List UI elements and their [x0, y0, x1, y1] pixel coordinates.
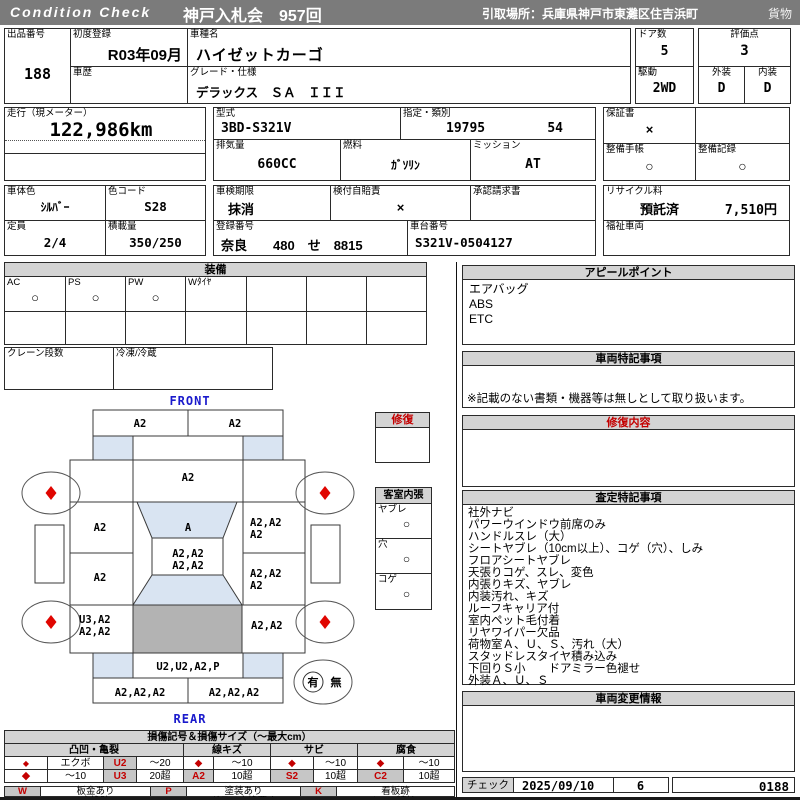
model-code-value: 3BD-S321V [221, 121, 291, 136]
zone-side-right-rear-1: A2,A2 [250, 568, 282, 580]
brand-logo: Condition Check [10, 4, 151, 20]
appeal-points-body: エアバッグ ABS ETC [462, 279, 795, 345]
change-info-header: 車両変更情報 [462, 691, 795, 706]
approval-cell: 承認請求書 [470, 185, 596, 221]
grade-label: グレード・仕様 [190, 67, 257, 78]
capacity-label: 定員 [7, 221, 26, 232]
approval-label: 承認請求書 [473, 186, 521, 197]
equipment-label-pw: PW [128, 277, 143, 288]
equipment-cell-r2-2 [65, 311, 126, 345]
registration-number-cell: 登録番号 奈良 480 せ 8815 [213, 220, 408, 256]
freezer-label: 冷凍/冷蔵 [116, 348, 157, 359]
equipment-cell-wtire: Wﾀｲﾔ [185, 276, 247, 312]
repair-flag-label: 修復 [392, 414, 414, 426]
exterior-grade-cell: 外装 D [698, 66, 745, 104]
drive-cell: 駆動 2WD [635, 66, 694, 104]
cabin-lining-burn-label: コゲ [378, 574, 397, 585]
check-date-cell: 2025/09/10 6 [513, 777, 669, 793]
zone-door-front-left: A2 [94, 522, 107, 534]
recycle-fee-label: リサイクル料 [606, 186, 663, 197]
insurance-label: 検付自賠責 [333, 186, 381, 197]
legend-dent-code-2: U3 [103, 769, 137, 783]
equipment-cell-r2-5 [246, 311, 307, 345]
exterior-grade-label: 外装 [699, 67, 744, 78]
cabin-lining-hole-value: ○ [382, 552, 431, 566]
history-cell: 車歴 [70, 66, 188, 104]
damage-diamond-rear-left [46, 615, 57, 629]
equipment-cell-ac: AC ○ [4, 276, 66, 312]
equipment-value-ac: ○ [5, 290, 65, 305]
zone-front-bumper-left: A2 [134, 418, 147, 430]
body-color-label: 車体色 [7, 186, 36, 197]
legend-dent-size-2: 20超 [136, 769, 184, 783]
cabin-lining-hole-cell: 穴 ○ [375, 538, 432, 574]
assessment-item: 荷物室Ａ、Ｕ、Ｓ、汚れ（大） [468, 639, 789, 651]
lot-number-value: 188 [5, 65, 70, 83]
odometer-value: 122,986km [5, 119, 197, 141]
recycle-status-value: 預託済 [640, 199, 679, 218]
zone-roof-1: A2,A2 [172, 548, 204, 560]
load-capacity-label: 積載量 [108, 221, 137, 232]
warranty-label: 保証書 [606, 108, 635, 119]
class-value-2: 54 [547, 121, 563, 136]
lot-number-label: 出品番号 [7, 29, 45, 40]
condition-check-sheet: Condition Check 神戸入札会 957回 引取場所：兵庫県神戸市東灘… [0, 0, 800, 800]
appeal-item: ETC [469, 312, 788, 327]
side-rail-right [311, 525, 340, 583]
registration-number-label: 登録番号 [216, 221, 254, 232]
equipment-cell-ps: PS ○ [65, 276, 126, 312]
zone-side-right-front-2: A2 [250, 529, 263, 541]
assessment-item: パワーウインドウ前席のみ [468, 519, 789, 531]
assessment-item: 室内ペット毛付着 [468, 615, 789, 627]
equipment-value-pw: ○ [126, 290, 185, 305]
history-label: 車歴 [73, 67, 92, 78]
dent-small-diamond-icon: ◆ [23, 759, 29, 768]
cargo-area-shape [133, 605, 242, 653]
zone-side-right-front-1: A2,A2 [250, 517, 282, 529]
score-cell: 評価点 3 [698, 28, 791, 67]
zone-quarter-left-1: U3,A2 [79, 614, 111, 626]
capacity-cell: 定員 2/4 [4, 220, 106, 256]
zone-door-rear-left: A2 [94, 572, 107, 584]
damage-diamond-front-right [320, 486, 331, 500]
legend-corrosion-code-2: C2 [357, 769, 404, 783]
check-code-cell: 0188 [672, 777, 795, 793]
maintenance-record-cell: 整備記録 ○ [695, 143, 790, 181]
insurance-value: × [331, 200, 470, 215]
assessment-item: 内装汚れ、キズ [468, 591, 789, 603]
category-label: 貨物 [768, 5, 792, 22]
legend-group-corrosion: 腐食 [357, 743, 455, 757]
zone-quarter-left-2: A2,A2 [79, 626, 111, 638]
doors-label: ドア数 [638, 29, 667, 40]
repair-content-header: 修復内容 [462, 415, 795, 430]
check-number-value: 6 [613, 779, 668, 793]
score-value: 3 [699, 43, 790, 59]
assessment-item: 天張りコゲ、スレ、変色 [468, 567, 789, 579]
vehicle-notes-body: ※記載のない書類・機器等は無しとして取り扱います。 [462, 365, 795, 408]
legend-corrosion-size-2: 10超 [403, 769, 455, 783]
assessment-item: 下回りＳ小 ドアミラー色褪せ [468, 663, 789, 675]
zone-roof-2: A2,A2 [172, 560, 204, 572]
assessment-item: 社外ナビ [468, 507, 789, 519]
damage-diamond-front-left [46, 486, 57, 500]
cabin-lining-tear-cell: ヤブレ ○ [375, 503, 432, 539]
drive-value: 2WD [636, 81, 693, 96]
cabin-lining-burn-cell: コゲ ○ [375, 573, 432, 610]
inspection-value: 抹消 [228, 199, 254, 218]
drive-label: 駆動 [638, 67, 657, 78]
legend-rust-size-2: 10超 [313, 769, 358, 783]
check-date-value: 2025/09/10 [522, 779, 594, 793]
zone-hood: A2 [182, 472, 195, 484]
legend-group-rust: サビ [270, 743, 358, 757]
assessment-notes-body: 社外ナビ パワーウインドウ前席のみ ハンドルスレ（大） シートヤブレ（10cm以… [462, 504, 795, 685]
legend-scratch-size-1: ～10 [213, 756, 271, 770]
legend-title: 損傷記号＆損傷サイズ（～最大cm） [4, 730, 455, 744]
inspection-cell: 車検期限 抹消 [213, 185, 331, 221]
repair-flag-body [375, 427, 430, 463]
equipment-cell-6 [306, 276, 367, 312]
equipment-cell-r2-1 [4, 311, 66, 345]
chassis-number-cell: 車台番号 S321V-0504127 [407, 220, 596, 256]
chassis-number-label: 車台番号 [410, 221, 448, 232]
doors-cell: ドア数 5 [635, 28, 694, 67]
model-code-cell: 型式 3BD-S321V [213, 107, 401, 140]
legend-dent-size-1: ～20 [136, 756, 184, 770]
class-label: 指定・類別 [403, 108, 451, 119]
check-code-value: 0188 [759, 779, 789, 794]
cabin-lining-header: 客室内張 [375, 487, 432, 504]
auction-title: 神戸入札会 957回 [183, 2, 322, 26]
legend-group-scratch: 線キズ [183, 743, 271, 757]
fuel-label: 燃料 [343, 140, 362, 151]
legend-scratch-size-2: 10超 [213, 769, 271, 783]
maintenance-book-value: ○ [604, 158, 695, 174]
zone-rear-bumper-left: A2,A2,A2 [115, 687, 166, 699]
appeal-points-header: アピールポイント [462, 265, 795, 280]
equipment-cell-7 [366, 276, 427, 312]
vehicle-notes-disclaimer: ※記載のない書類・機器等は無しとして取り扱います。 [467, 390, 751, 406]
check-label-cell: チェック [462, 777, 514, 793]
crane-label: クレーン段数 [7, 348, 64, 359]
legend-dent-name-1: エクボ [47, 756, 104, 770]
front-label: FRONT [169, 394, 210, 408]
interior-grade-cell: 内装 D [744, 66, 791, 104]
body-color-cell: 車体色 ｼﾙﾊﾞｰ [4, 185, 106, 221]
repair-content-title: 修復内容 [607, 417, 651, 429]
assessment-item: ルーフキャリア付 [468, 603, 789, 615]
pickup-location: 引取場所：兵庫県神戸市東灘区住吉浜町 [482, 5, 698, 22]
rust-diamond-icon: ◆ [288, 758, 296, 769]
scratch-diamond-icon: ◆ [195, 758, 203, 769]
mission-label: ミッション [473, 140, 521, 151]
maintenance-book-label: 整備手帳 [606, 144, 644, 155]
appeal-item: ABS [469, 297, 788, 312]
displacement-value: 660CC [214, 157, 340, 172]
equipment-cell-5 [246, 276, 307, 312]
legend-rust-size-1: ～10 [313, 756, 358, 770]
rear-label: REAR [174, 712, 207, 726]
chassis-number-value: S321V-0504127 [415, 235, 513, 250]
load-capacity-cell: 積載量 350/250 [105, 220, 206, 256]
model-name-value: ハイゼットカーゴ [196, 44, 324, 65]
load-capacity-value: 350/250 [106, 235, 205, 250]
maintenance-record-value: ○ [696, 158, 789, 174]
cabin-lining-burn-value: ○ [382, 587, 431, 601]
column-divider [456, 262, 457, 798]
repair-flag-header: 修復 [375, 412, 430, 428]
class-cell: 指定・類別 19795 54 [400, 107, 596, 140]
equipment-label-ps: PS [68, 277, 81, 288]
color-code-cell: 色コード S28 [105, 185, 206, 221]
displacement-cell: 排気量 660CC [213, 139, 341, 181]
odometer-cell: 走行（現メーター） 122,986km [4, 107, 206, 181]
corrosion-diamond-icon: ◆ [377, 758, 385, 769]
assessment-item: 内張りキズ、ヤブレ [468, 579, 789, 591]
insurance-cell: 検付自賠責 × [330, 185, 471, 221]
assessment-item: リヤワイパー欠品 [468, 627, 789, 639]
mission-value: AT [471, 157, 595, 172]
registration-number-value: 奈良 480 せ 8815 [221, 235, 363, 254]
first-registration-cell: 初度登録 R03年09月 [70, 28, 188, 67]
inspection-label: 車検期限 [216, 186, 254, 197]
interior-grade-label: 内装 [745, 67, 790, 78]
crane-cell: クレーン段数 [4, 347, 114, 390]
warranty-value: × [604, 122, 695, 137]
equipment-label-wtire: Wﾀｲﾔ [188, 277, 211, 288]
color-code-label: 色コード [108, 186, 146, 197]
cabin-lining-tear-value: ○ [382, 517, 431, 531]
body-color-value: ｼﾙﾊﾞｰ [5, 199, 105, 215]
maintenance-record-label: 整備記録 [698, 144, 736, 155]
zone-rear-bumper-right: A2,A2,A2 [209, 687, 260, 699]
dent-large-diamond-icon: ◆ [22, 770, 30, 782]
assessment-item: フロアシートヤブレ [468, 555, 789, 567]
spare-no-label: 無 [331, 675, 342, 689]
doors-value: 5 [636, 44, 693, 59]
recycle-fee-value: 7,510円 [725, 199, 777, 218]
first-registration-label: 初度登録 [73, 29, 111, 40]
displacement-label: 排気量 [216, 140, 245, 151]
fuel-cell: 燃料 ｶﾞｿﾘﾝ [340, 139, 471, 181]
assessment-item: 外装Ａ、Ｕ、Ｓ [468, 675, 789, 687]
lot-number-cell: 出品番号 188 [4, 28, 71, 104]
class-value-1: 19795 [446, 121, 485, 136]
model-name-label: 車種名 [190, 29, 219, 40]
equipment-header: 装備 [4, 262, 427, 277]
odometer-divider-solid [5, 153, 205, 154]
zone-rear-panel: U2,U2,A2,P [156, 661, 219, 673]
zone-front-bumper-right: A2 [229, 418, 242, 430]
repair-content-body [462, 429, 795, 487]
vehicle-notes-header: 車両特記事項 [462, 351, 795, 366]
equipment-cell-r2-3 [125, 311, 186, 345]
legend-dent-name-2: ～10 [47, 769, 104, 783]
fuel-value: ｶﾞｿﾘﾝ [341, 157, 470, 173]
mission-cell: ミッション AT [470, 139, 596, 181]
odometer-label: 走行（現メーター） [7, 108, 93, 119]
legend-group-dent: 凸凹・亀裂 [4, 743, 184, 757]
zone-quarter-right: A2,A2 [251, 620, 283, 632]
legend-rust-code-2: S2 [270, 769, 314, 783]
score-label: 評価点 [699, 29, 790, 40]
equipment-label-ac: AC [7, 277, 20, 288]
cabin-lining-tear-label: ヤブレ [378, 504, 407, 515]
capacity-value: 2/4 [5, 235, 105, 250]
color-code-value: S28 [106, 199, 205, 214]
equipment-cell-r2-6 [306, 311, 367, 345]
welfare-vehicle-label: 福祉車両 [606, 221, 644, 232]
exterior-grade-value: D [699, 81, 744, 96]
legend-dent-code-1: U2 [103, 756, 137, 770]
grade-value: デラックス ＳＡ ＩＩＩ [196, 82, 346, 101]
spare-yes-label: 有 [308, 675, 319, 689]
assessment-notes-header: 査定特記事項 [462, 490, 795, 505]
recycle-fee-cell: リサイクル料 預託済 7,510円 [603, 185, 790, 221]
maintenance-book-cell: 整備手帳 ○ [603, 143, 696, 181]
legend-corrosion-size-1: ～10 [403, 756, 455, 770]
model-code-label: 型式 [216, 108, 235, 119]
zone-side-right-rear-2: A2 [250, 580, 263, 592]
assessment-item: スタッドレスタイヤ積み込み [468, 651, 789, 663]
welfare-vehicle-cell: 福祉車両 [603, 220, 790, 256]
equipment-cell-pw: PW ○ [125, 276, 186, 312]
cabin-lining-hole-label: 穴 [378, 539, 388, 550]
warranty-cell: 保証書 × [603, 107, 696, 144]
zone-windshield: A [185, 522, 192, 534]
equipment-value-ps: ○ [66, 290, 125, 305]
grade-cell: グレード・仕様 デラックス ＳＡ ＩＩＩ [187, 66, 631, 104]
equipment-cell-r2-4 [185, 311, 247, 345]
change-info-body [462, 705, 795, 772]
assessment-item: ハンドルスレ（大） [468, 531, 789, 543]
first-registration-value: R03年09月 [108, 44, 182, 65]
freezer-cell: 冷凍/冷蔵 [113, 347, 273, 390]
equipment-cell-r2-7 [366, 311, 427, 345]
damage-diamond-rear-right [320, 615, 331, 629]
rear-window-shape [133, 575, 242, 605]
interior-grade-value: D [745, 81, 790, 96]
warranty-blank-cell [695, 107, 790, 144]
assessment-item: シートヤブレ（10cm以上）、コゲ（穴）、しみ [468, 543, 789, 555]
odometer-divider-dotted [5, 140, 205, 141]
side-rail-left [35, 525, 64, 583]
appeal-item: エアバッグ [469, 282, 788, 297]
model-name-cell: 車種名 ハイゼットカーゴ [187, 28, 631, 67]
title-bar: Condition Check 神戸入札会 957回 引取場所：兵庫県神戸市東灘… [0, 0, 800, 25]
legend-scratch-code-2: A2 [183, 769, 214, 783]
